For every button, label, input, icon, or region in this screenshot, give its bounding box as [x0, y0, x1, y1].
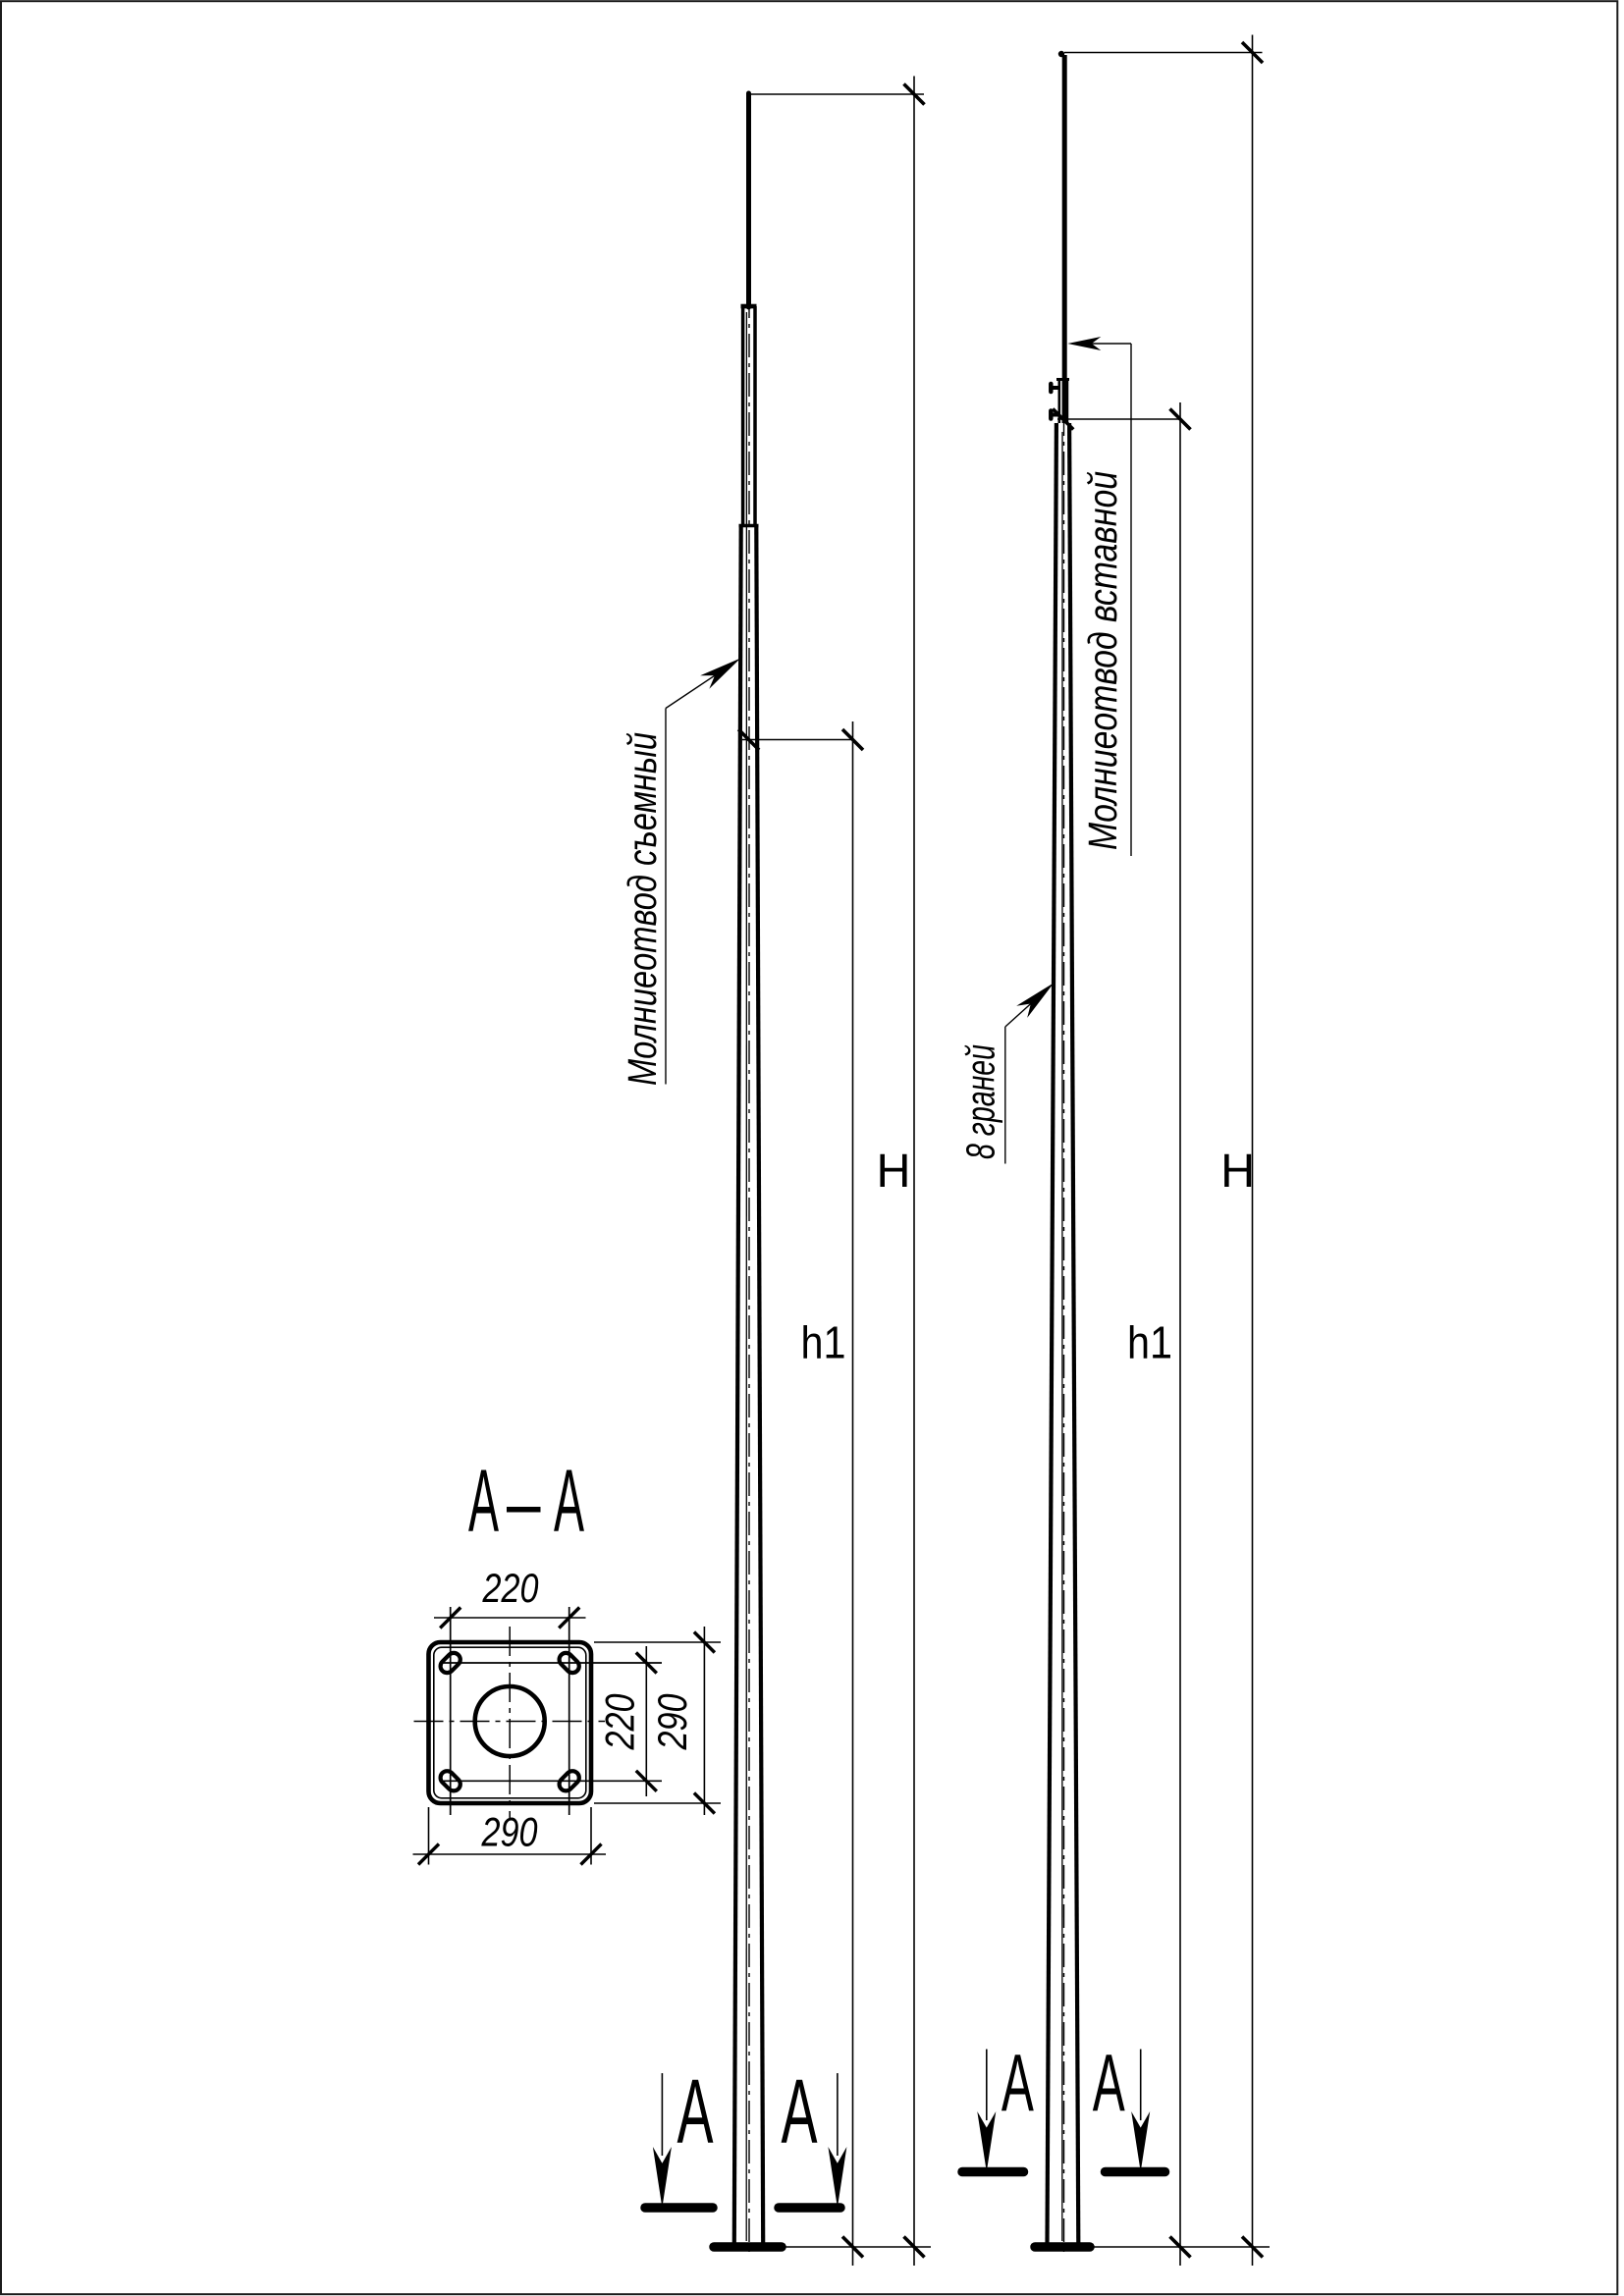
svg-text:A: A: [1001, 2037, 1034, 2128]
svg-text:A: A: [677, 2060, 714, 2163]
svg-text:H: H: [1220, 1146, 1255, 1198]
svg-text:A: A: [782, 2060, 818, 2163]
svg-text:8 граней: 8 граней: [958, 1044, 1003, 1159]
svg-text:h1: h1: [801, 1317, 846, 1368]
svg-text:A: A: [1093, 2037, 1125, 2128]
svg-text:220: 220: [482, 1565, 539, 1611]
svg-text:A: A: [468, 1453, 499, 1551]
svg-text:H: H: [877, 1146, 911, 1198]
svg-text:Молниеотвод съемный: Молниеотвод съемный: [620, 732, 665, 1086]
svg-text:A: A: [554, 1453, 584, 1551]
svg-text:h1: h1: [1127, 1317, 1172, 1368]
svg-text:Молниеотвод вставной: Молниеотвод вставной: [1080, 471, 1125, 850]
svg-text:290: 290: [649, 1693, 695, 1750]
svg-text:290: 290: [481, 1809, 538, 1855]
svg-text:220: 220: [597, 1693, 643, 1750]
